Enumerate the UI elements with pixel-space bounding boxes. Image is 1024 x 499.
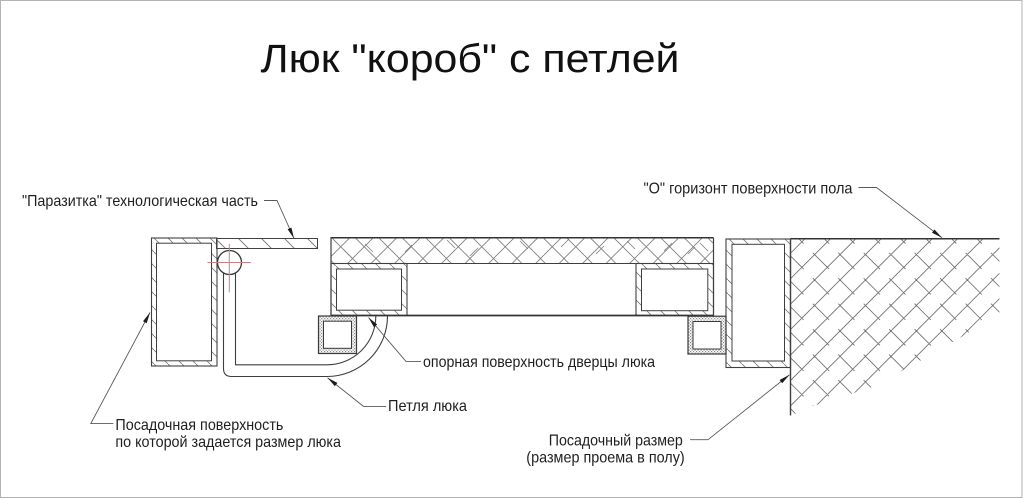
svg-text:Люк "короб" с петлей: Люк "короб" с петлей — [261, 37, 680, 81]
svg-text:"Паразитка" технологическая ча: "Паразитка" технологическая часть — [22, 193, 258, 210]
svg-text:опорная поверхность дверцы люк: опорная поверхность дверцы люка — [423, 354, 655, 371]
svg-text:по которой задается размер люк: по которой задается размер люка — [115, 434, 341, 451]
svg-text:Посадочная поверхность: Посадочная поверхность — [115, 417, 283, 434]
svg-text:Посадочный размер: Посадочный размер — [549, 433, 683, 450]
svg-text:(размер проема в полу): (размер проема в полу) — [526, 449, 684, 466]
svg-text:"О" горизонт поверхности пола: "О" горизонт поверхности пола — [644, 180, 853, 197]
svg-text:Петля люка: Петля люка — [388, 398, 467, 415]
